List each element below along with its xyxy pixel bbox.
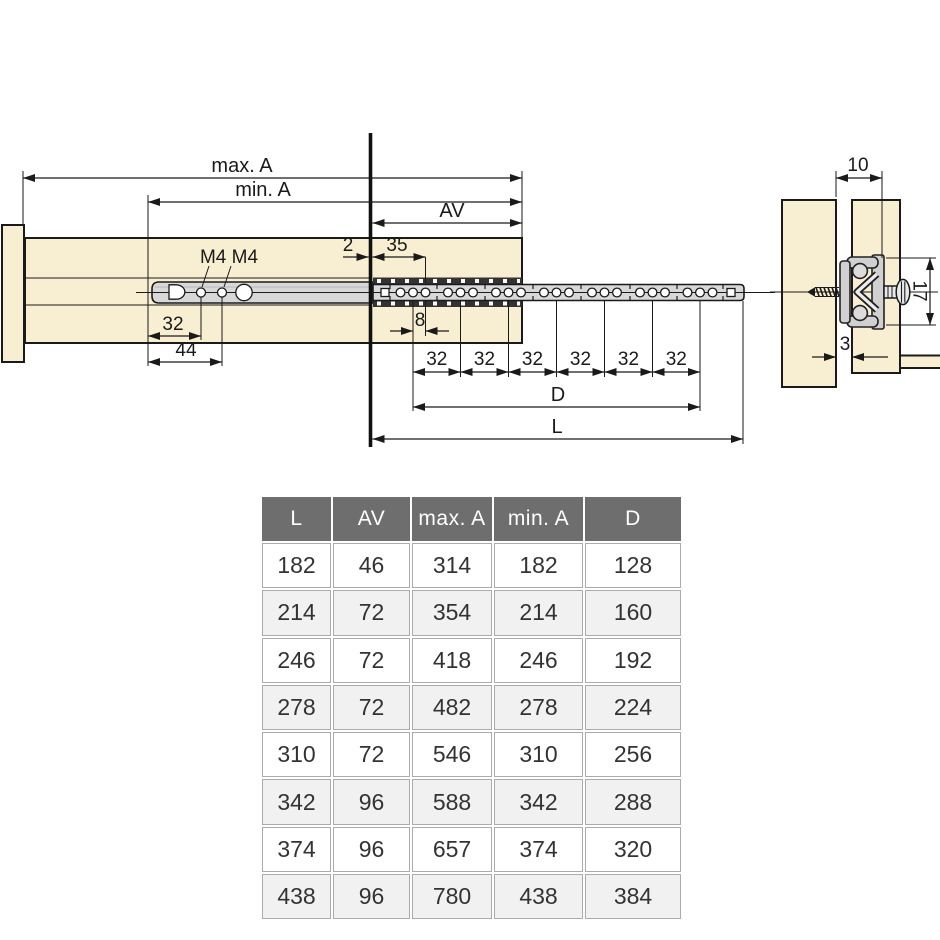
table-header-d: D bbox=[585, 497, 681, 541]
table-cell: 160 bbox=[585, 590, 681, 635]
plan-view: max. A min. A AV 2 35 M4 M4 32 44 8 32 3… bbox=[2, 133, 775, 447]
table-cell: 482 bbox=[412, 685, 492, 730]
drawer-slide-technical-diagram: max. A min. A AV 2 35 M4 M4 32 44 8 32 3… bbox=[0, 0, 940, 470]
table-cell: 374 bbox=[494, 827, 583, 872]
table-cell: 72 bbox=[333, 590, 410, 635]
table-cell: 96 bbox=[333, 827, 410, 872]
table-cell: 96 bbox=[333, 874, 410, 919]
dim-label-2: 2 bbox=[343, 235, 354, 256]
table-cell: 342 bbox=[262, 779, 331, 824]
dim-label-d: D bbox=[551, 384, 565, 406]
table-cell: 588 bbox=[412, 779, 492, 824]
table-cell: 246 bbox=[494, 638, 583, 683]
table-cell: 128 bbox=[585, 543, 681, 588]
dim-label-32-2: 32 bbox=[474, 349, 495, 370]
table-cell: 438 bbox=[262, 874, 331, 919]
dim-label-35: 35 bbox=[386, 235, 407, 256]
table-cell: 314 bbox=[412, 543, 492, 588]
table-cell: 182 bbox=[262, 543, 331, 588]
table-cell: 192 bbox=[585, 638, 681, 683]
table-cell: 342 bbox=[494, 779, 583, 824]
table-cell: 224 bbox=[585, 685, 681, 730]
bolt-head bbox=[896, 279, 910, 304]
table-cell: 384 bbox=[585, 874, 681, 919]
dim-label-min-a: min. A bbox=[235, 179, 291, 201]
dim-label-44: 44 bbox=[175, 340, 197, 361]
dim-label-32-5: 32 bbox=[618, 349, 639, 370]
dim-label-32-left: 32 bbox=[162, 314, 183, 335]
dim-label-l: L bbox=[551, 416, 562, 438]
drawer-slide-spec-page: max. A min. A AV 2 35 M4 M4 32 44 8 32 3… bbox=[0, 0, 940, 940]
m4-hole-2 bbox=[218, 288, 227, 297]
table-cell: 278 bbox=[262, 685, 331, 730]
dim-label-av: AV bbox=[439, 200, 465, 222]
table-header-av: AV bbox=[333, 497, 410, 541]
table-header-min-a: min. A bbox=[494, 497, 583, 541]
dimensions-table: L AV max. A min. A D 182 46 314 182 128 … bbox=[262, 497, 681, 919]
m4-hole-1 bbox=[197, 288, 206, 297]
table-cell: 278 bbox=[494, 685, 583, 730]
dim-label-8: 8 bbox=[415, 310, 426, 331]
table-cell: 374 bbox=[262, 827, 331, 872]
slide-cross-section bbox=[840, 255, 884, 329]
dim-label-32-6: 32 bbox=[666, 349, 687, 370]
dim-label-10: 10 bbox=[847, 155, 868, 176]
dim-label-32-4: 32 bbox=[570, 349, 591, 370]
dim-label-32-3: 32 bbox=[522, 349, 543, 370]
table-cell: 72 bbox=[333, 638, 410, 683]
dim-label-max-a: max. A bbox=[211, 155, 273, 177]
square-hole-rear bbox=[727, 289, 735, 297]
table-cell: 246 bbox=[262, 638, 331, 683]
table-header-l: L bbox=[262, 497, 331, 541]
table-cell: 310 bbox=[494, 732, 583, 777]
dim-label-17: 17 bbox=[909, 280, 930, 301]
table-cell: 310 bbox=[262, 732, 331, 777]
table-cell: 354 bbox=[412, 590, 492, 635]
table-header-max-a: max. A bbox=[412, 497, 492, 541]
table-cell: 438 bbox=[494, 874, 583, 919]
square-hole-front bbox=[381, 289, 389, 297]
bolt-shaft bbox=[884, 286, 897, 298]
table-cell: 72 bbox=[333, 732, 410, 777]
table-cell: 182 bbox=[494, 543, 583, 588]
table-cell: 418 bbox=[412, 638, 492, 683]
cabinet-member-plate bbox=[840, 261, 850, 323]
ball-bearing-top bbox=[853, 264, 868, 279]
d-slot-hole bbox=[169, 285, 185, 299]
table-cell: 780 bbox=[412, 874, 492, 919]
table-cell: 214 bbox=[262, 590, 331, 635]
cabinet-side-panel bbox=[782, 200, 836, 387]
table-cell: 256 bbox=[585, 732, 681, 777]
dim-label-3: 3 bbox=[840, 334, 851, 355]
table-cell: 214 bbox=[494, 590, 583, 635]
hole-triplets bbox=[396, 288, 717, 297]
table-cell: 46 bbox=[333, 543, 410, 588]
table-cell: 657 bbox=[412, 827, 492, 872]
label-m4: M4 M4 bbox=[200, 247, 259, 268]
table-cell: 288 bbox=[585, 779, 681, 824]
table-cell: 546 bbox=[412, 732, 492, 777]
table-cell: 72 bbox=[333, 685, 410, 730]
drawer-front-section bbox=[2, 225, 24, 362]
table-cell: 96 bbox=[333, 779, 410, 824]
section-view: 10 17 3 bbox=[770, 155, 940, 387]
dim-label-32-1: 32 bbox=[426, 349, 447, 370]
ball-bearing-bottom bbox=[853, 306, 868, 321]
round-hole bbox=[236, 284, 252, 300]
table-cell: 320 bbox=[585, 827, 681, 872]
